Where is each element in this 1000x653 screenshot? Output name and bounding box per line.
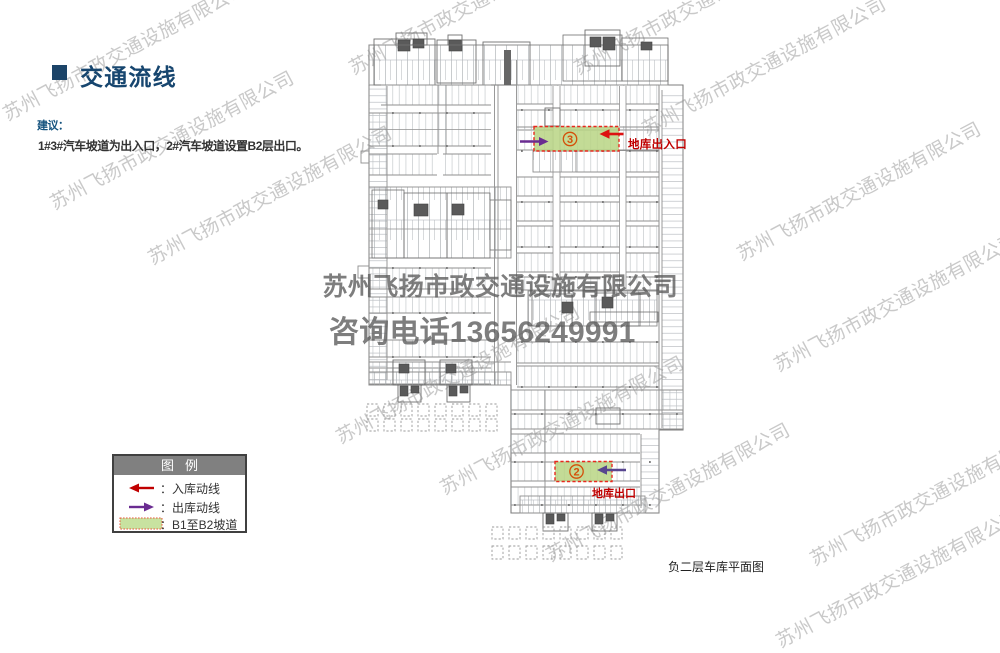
svg-text:：入库动线: ：入库动线 xyxy=(160,481,220,496)
svg-text:：B1至B2坡道: ：B1至B2坡道 xyxy=(160,518,237,531)
svg-text:：出库动线: ：出库动线 xyxy=(160,500,220,515)
svg-text:2: 2 xyxy=(573,467,579,479)
svg-text:3: 3 xyxy=(567,134,573,146)
